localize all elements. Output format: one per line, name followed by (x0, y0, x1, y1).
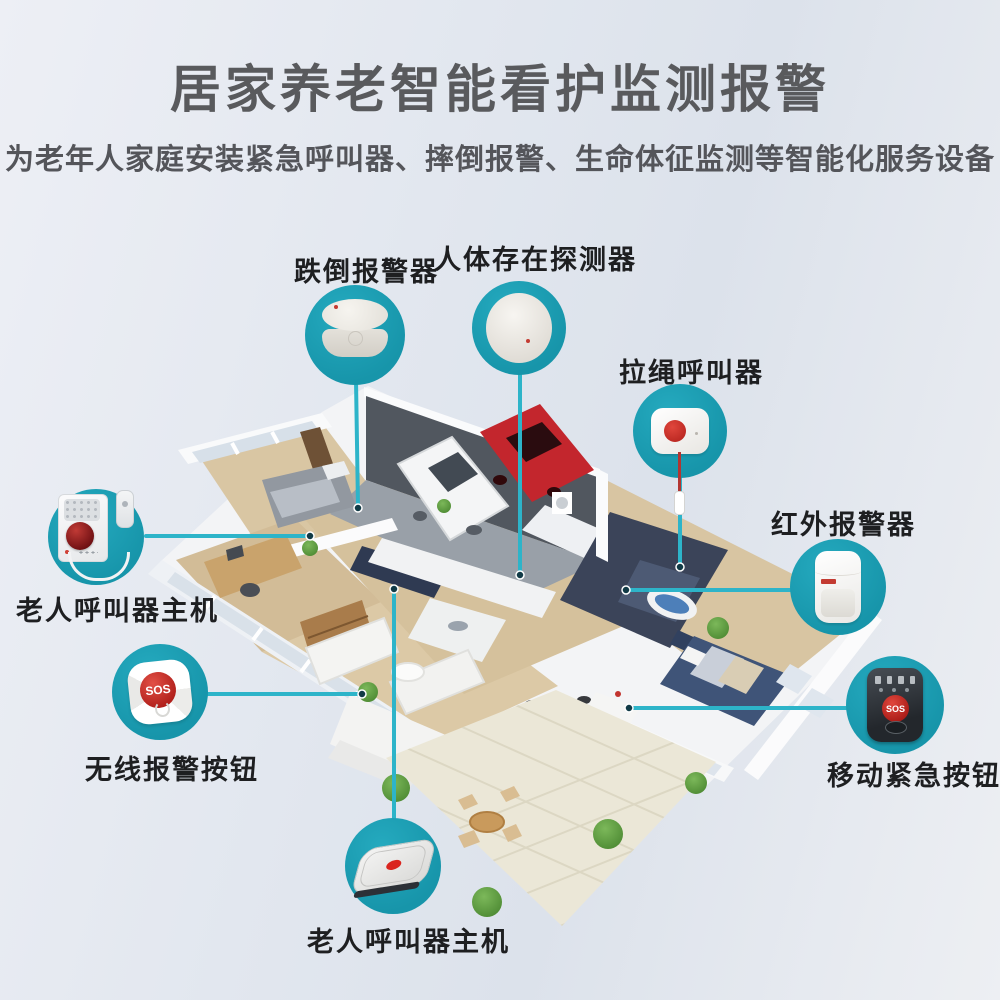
pull-cord-caller-icon (651, 408, 709, 454)
label-wireless-sos: 无线报警按钮 (85, 748, 259, 787)
label-caller-host-bottom: 老人呼叫器主机 (307, 920, 510, 959)
pull-cord-string (678, 452, 681, 496)
badge-mobile-emergency-button: SOS (846, 656, 944, 754)
base-station-icon (350, 838, 435, 894)
label-mobile-emergency: 移动紧急按钮 (827, 754, 1000, 793)
badge-presence-detector (472, 281, 566, 375)
badge-caller-host-bottom (345, 818, 441, 914)
badge-caller-host-left (48, 489, 144, 585)
label-infrared-alarm: 红外报警器 (771, 503, 916, 542)
label-caller-host-left: 老人呼叫器主机 (16, 589, 219, 628)
mobile-emergency-button-icon: SOS (867, 668, 923, 742)
caller-host-icon (58, 494, 134, 580)
presence-detector-icon (486, 293, 552, 363)
label-fall-alarm: 跌倒报警器 (294, 250, 439, 289)
badge-fall-alarm (305, 285, 405, 385)
badge-wireless-sos-button: SOS (112, 644, 208, 740)
mobile-sos-text: SOS (882, 695, 909, 722)
poster-canvas: 居家养老智能看护监测报警 为老年人家庭安装紧急呼叫器、摔倒报警、生命体征监测等智… (0, 0, 1000, 1000)
wireless-sos-button-icon: SOS (129, 661, 191, 723)
floorplan-illustration (0, 0, 1000, 1000)
fall-alarm-icon (322, 313, 388, 357)
label-presence-detector: 人体存在探测器 (434, 238, 637, 277)
badge-infrared-alarm (790, 539, 886, 635)
pull-cord-handle (674, 491, 685, 515)
infrared-alarm-icon (815, 551, 861, 623)
label-pull-cord-caller: 拉绳呼叫器 (619, 351, 764, 390)
